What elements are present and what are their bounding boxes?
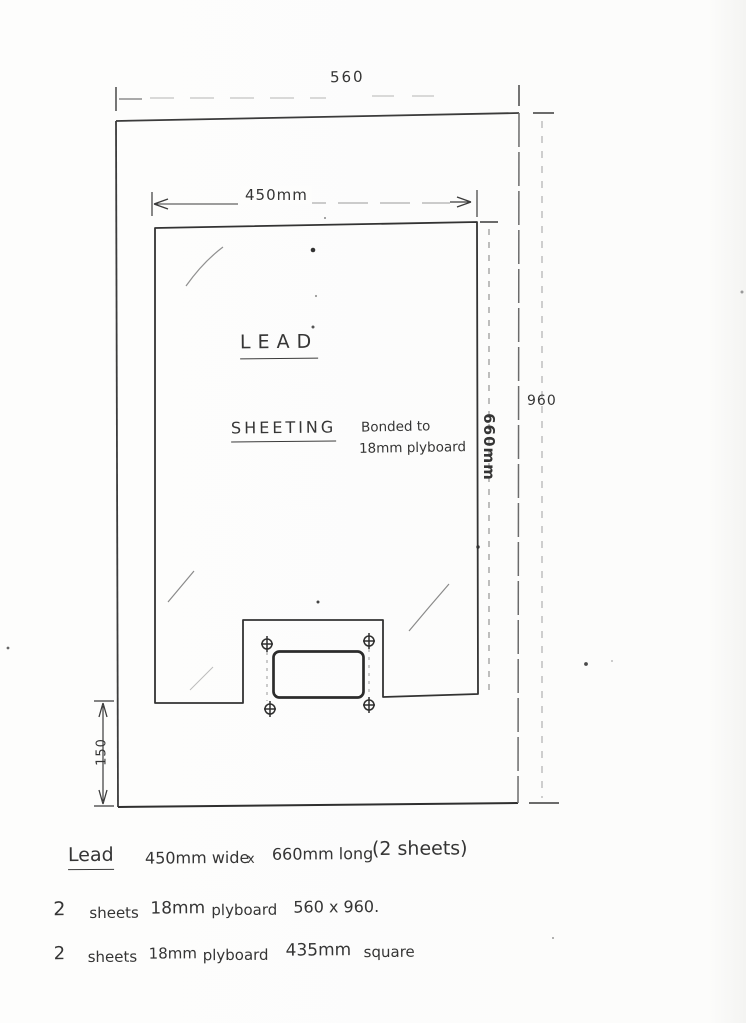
screw-marks bbox=[261, 633, 375, 717]
note1-width-spec: 450mm wide bbox=[145, 848, 249, 868]
sheet-title-sheeting: SHEETING bbox=[231, 417, 337, 442]
screw-mark bbox=[264, 701, 276, 717]
bonded-note-line2: 18mm plyboard bbox=[359, 439, 466, 457]
note2-thickness: 18mm bbox=[150, 898, 205, 918]
note2-material: plyboard bbox=[211, 901, 277, 919]
note3-thickness: 18mm bbox=[149, 944, 197, 962]
sheet-title-lead: LEAD bbox=[240, 331, 319, 360]
inner-sheet-outline bbox=[155, 222, 478, 703]
outer-width-label: 560 bbox=[330, 68, 365, 87]
inner-width-dimension-line bbox=[152, 190, 477, 217]
note3-size: 435mm bbox=[286, 940, 352, 960]
note1-quantity: (2 sheets) bbox=[372, 837, 468, 860]
outer-height-label: 960 bbox=[527, 393, 557, 409]
inner-height-label: 660mm bbox=[480, 413, 498, 481]
top-dimension-line bbox=[116, 85, 519, 111]
note3-quantity: 2 bbox=[54, 943, 66, 964]
bonded-note-line1: Bonded to bbox=[361, 418, 431, 435]
screw-mark bbox=[363, 633, 375, 649]
note2-quantity: 2 bbox=[53, 898, 65, 920]
scanned-drawing-page: 560 450mm 660mm 960 150 LEAD SHEETING Bo… bbox=[0, 0, 746, 1023]
note1-times-sign: x bbox=[247, 852, 255, 867]
outer-height-dimension-line bbox=[529, 113, 559, 803]
screw-mark bbox=[261, 636, 273, 652]
inner-width-label: 450mm bbox=[241, 186, 312, 204]
note3-item: sheets bbox=[88, 948, 138, 966]
note3-material: plyboard bbox=[203, 946, 269, 964]
screw-mark bbox=[363, 697, 375, 713]
note3-shape: square bbox=[364, 943, 415, 961]
note2-size: 560 x 960. bbox=[293, 897, 379, 917]
corner-hatch-marks bbox=[168, 247, 449, 690]
cutout-box bbox=[274, 652, 364, 698]
bottom-margin-label: 150 bbox=[95, 738, 110, 766]
note2-item: sheets bbox=[89, 904, 139, 922]
note1-length-spec: 660mm long bbox=[272, 844, 373, 864]
note1-lead-label: Lead bbox=[68, 844, 114, 870]
